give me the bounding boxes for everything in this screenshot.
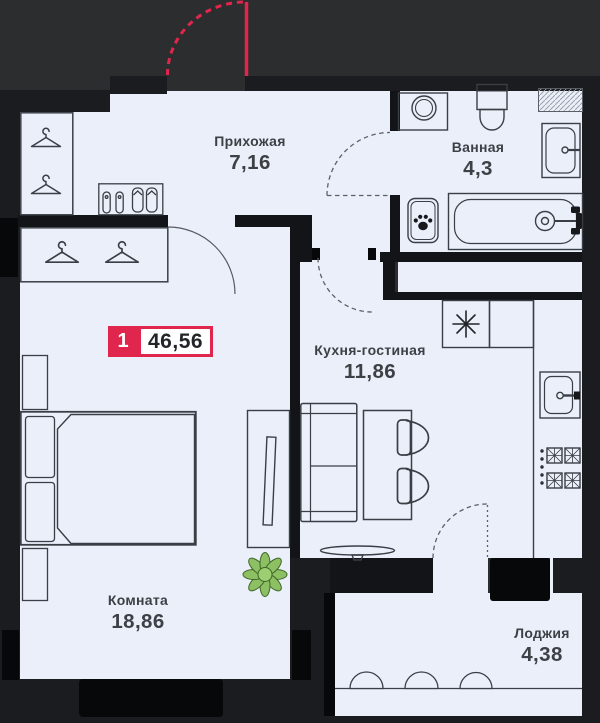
room-label-bathroom: Ванная 4,3 — [452, 139, 505, 181]
room-name: Лоджия — [514, 625, 570, 641]
floor-plan: Прихожая 7,16 Ванная 4,3 Кухня-гостиная … — [0, 0, 600, 723]
room-label-loggia: Лоджия 4,38 — [514, 625, 570, 667]
room-area: 4,38 — [514, 643, 570, 667]
window-gap — [550, 558, 553, 601]
entry-door — [168, 2, 247, 76]
total-area-badge: 46,56 — [138, 326, 213, 357]
window-living-loggia — [490, 558, 550, 601]
room-name: Комната — [108, 592, 168, 608]
room-label-hallway: Прихожая 7,16 — [214, 133, 285, 175]
apartment-summary-badge: 1 46,56 — [108, 326, 213, 357]
room-name: Ванная — [452, 139, 505, 155]
pilaster-left-lower — [2, 630, 19, 680]
rooms-count-badge: 1 — [108, 326, 138, 357]
room-area: 7,16 — [214, 151, 285, 175]
room-name: Кухня-гостиная — [314, 342, 425, 358]
window-room — [79, 679, 223, 717]
room-area: 4,3 — [452, 157, 505, 181]
room-label-kitchen-living: Кухня-гостиная 11,86 — [314, 342, 425, 384]
room-name: Прихожая — [214, 133, 285, 149]
room-label-room: Комната 18,86 — [108, 592, 168, 634]
room-area: 11,86 — [314, 360, 425, 384]
pilaster-left-upper — [0, 218, 18, 277]
room-area: 18,86 — [108, 610, 168, 634]
pilaster-room-right — [292, 630, 311, 680]
